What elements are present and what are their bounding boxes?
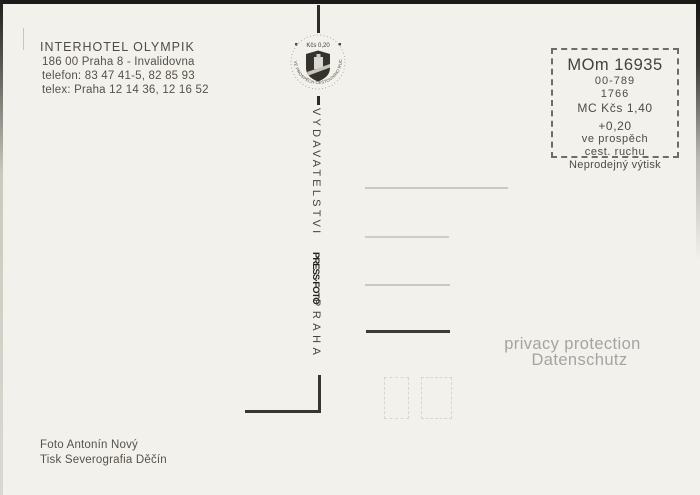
hotel-address: 186 00 Praha 8 - Invalidovna — [40, 55, 209, 69]
price-box-number-2: 1766 — [553, 88, 677, 101]
divider-corner-bracket — [245, 375, 321, 413]
press-foto-logo: PRESS·FOTO — [310, 252, 321, 304]
scan-edge-left — [0, 0, 3, 495]
scan-edge-right — [696, 0, 700, 260]
privacy-watermark: privacy protection Datenschutz — [465, 337, 680, 368]
hotel-info-block: INTERHOTEL OLYMPIK 186 00 Praha 8 - Inva… — [40, 40, 209, 97]
emblem-value-text: Kčs 0,20 — [306, 43, 330, 49]
address-line-1 — [365, 187, 508, 189]
price-box-price: MC Kčs 1,40 — [553, 101, 677, 115]
credits-block: Foto Antonín Nový Tisk Severografia Děčí… — [40, 438, 167, 467]
price-box-purpose-1: ve prospěch — [553, 133, 677, 146]
address-line-3 — [365, 284, 450, 286]
price-box-note: Neprodejný výtisk — [553, 159, 677, 172]
hotel-name: INTERHOTEL OLYMPIK — [40, 40, 209, 54]
privacy-watermark-line-2: Datenschutz — [465, 353, 680, 369]
credit-photo: Foto Antonín Nový — [40, 438, 167, 453]
hotel-telefon: telefon: 83 47 41-5, 82 85 93 — [40, 69, 209, 83]
emblem-tower — [317, 54, 321, 58]
divider-dash — [317, 96, 320, 105]
price-stamp-box: MOm 16935 00-789 1766 MC Kčs 1,40 +0,20 … — [551, 48, 679, 158]
price-box-number-1: 00-789 — [553, 75, 677, 88]
credit-print: Tisk Severografia Děčín — [40, 453, 167, 468]
hotel-telex: telex: Praha 12 14 36, 12 16 52 — [40, 83, 209, 97]
address-line-2 — [365, 236, 449, 238]
divider-line-top — [317, 5, 320, 33]
price-box-surcharge: +0,20 — [553, 120, 677, 133]
scan-edge-top — [0, 0, 700, 4]
emblem-right-square — [339, 43, 341, 45]
stamp-guide-box-1 — [384, 377, 409, 419]
publisher-vertical-text: VYDAVATELSTVI — [310, 108, 322, 236]
price-box-code: MOm 16935 — [553, 56, 677, 75]
emblem-left-square — [295, 43, 297, 45]
stamp-guide-box-2 — [421, 377, 452, 419]
tax-stamp-emblem: Kčs 0,20 VE PROSPĚCH CESTOVNÍHO RUCHU — [289, 33, 347, 91]
address-line-4 — [366, 330, 450, 333]
city-vertical-text: PRAHA — [310, 299, 322, 359]
price-box-purpose-2: cest. ruchu — [553, 146, 677, 159]
postcard-back: INTERHOTEL OLYMPIK 186 00 Praha 8 - Inva… — [0, 0, 700, 495]
scan-artifact-line — [23, 28, 24, 50]
